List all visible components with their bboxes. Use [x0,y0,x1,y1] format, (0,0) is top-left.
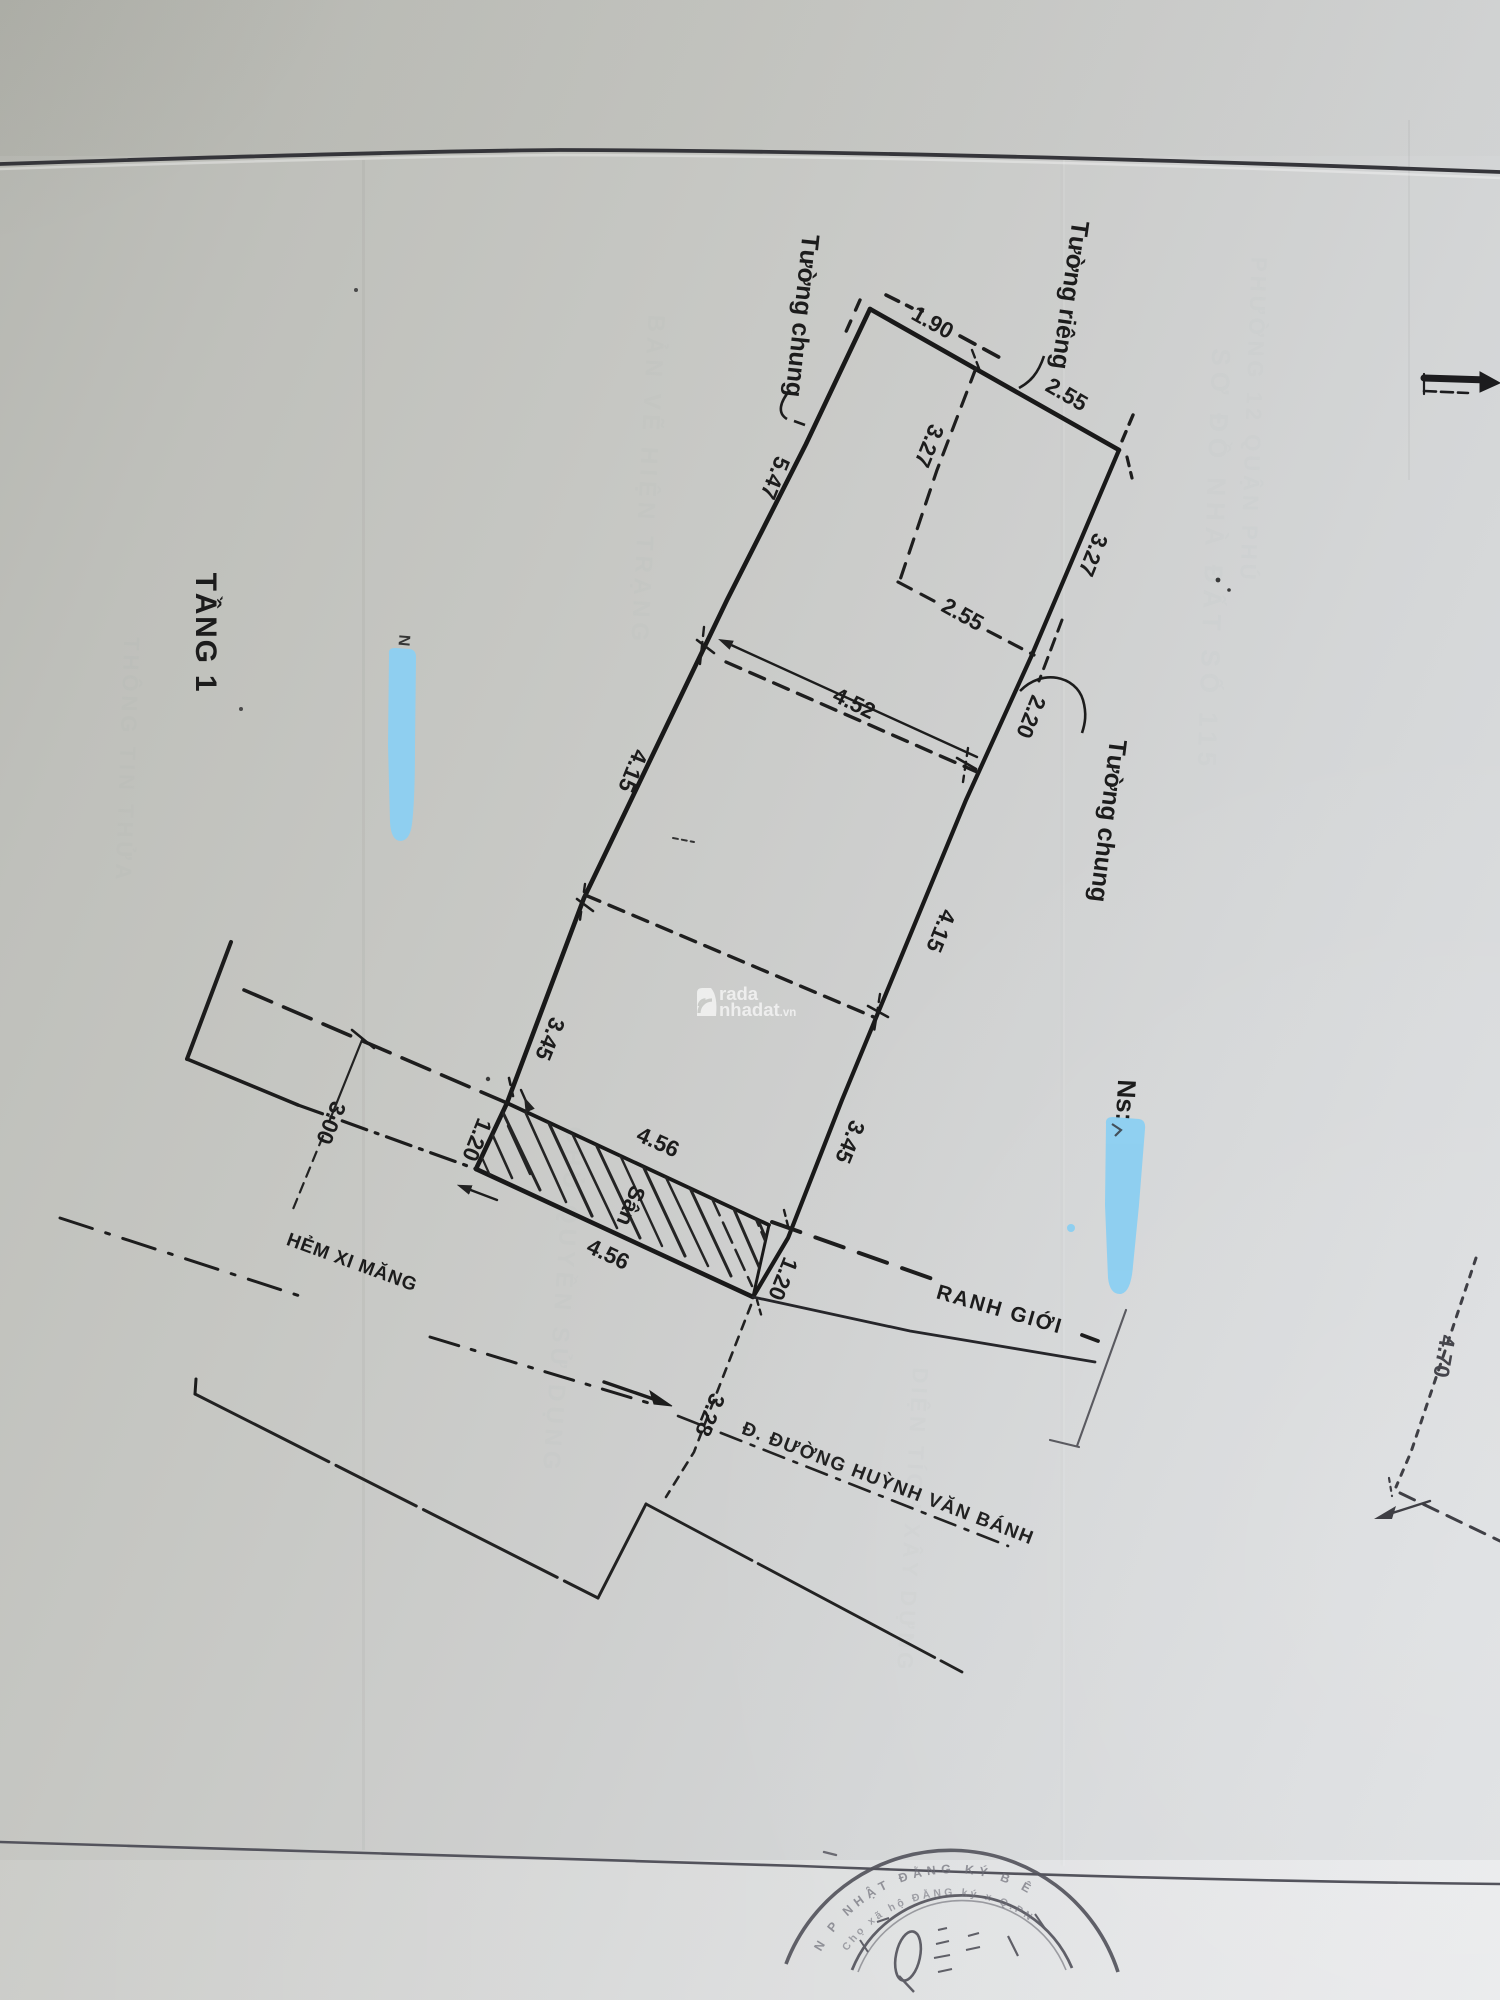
svg-text:Ns:: Ns: [1110,1079,1142,1122]
svg-text:5.47: 5.47 [755,453,795,503]
svg-text:Tường riêng: Tường riêng [1046,219,1095,371]
svg-text:BẢN VẼ HIỆN TRẠNG: BẢN VẼ HIỆN TRẠNG [625,314,671,647]
svg-text:3.45: 3.45 [530,1014,570,1064]
svg-text:3.45: 3.45 [830,1117,870,1167]
svg-text:4.15: 4.15 [921,906,961,956]
svg-text:Đ. ĐƯỜNG HUỲNH VĂN BÁNH: Đ. ĐƯỜNG HUỲNH VĂN BÁNH [739,1417,1038,1549]
svg-text:Tường chung: Tường chung [779,233,824,399]
svg-text:rada: rada [719,983,759,1004]
svg-text:1.90: 1.90 [907,301,957,344]
svg-text:RANH GIỚI: RANH GIỚI [934,1280,1066,1339]
svg-text:TẦNG 1: TẦNG 1 [189,573,223,694]
svg-text:2.20: 2.20 [1011,692,1051,742]
svg-text:SƠ ĐỒ NHÀ ĐẤT SỐ 115: SƠ ĐỒ NHÀ ĐẤT SỐ 115 [1192,348,1237,773]
svg-text:HẺM XI MĂNG: HẺM XI MĂNG [284,1228,421,1296]
svg-text:Chọ xã hộ ĐẰNG ký x Q.PN: Chọ xã hộ ĐẰNG ký x Q.PN [840,1886,1037,1953]
svg-text:4.56: 4.56 [633,1122,683,1163]
svg-text:PHƯỜNG 12 QUẬN PHÚ: PHƯỜNG 12 QUẬN PHÚ [1235,257,1271,584]
svg-text:DIỆN TÍCH XÂY DỰNG: DIỆN TÍCH XÂY DỰNG [892,1367,933,1674]
svg-text:3.28: 3.28 [690,1390,730,1440]
svg-text:4.15: 4.15 [613,746,653,796]
svg-text:N P NHẬT ĐẰNG KÝ B Ê: N P NHẬT ĐẰNG KÝ B Ê [811,1862,1038,1953]
svg-text:nhadat.vn: nhadat.vn [719,999,796,1020]
svg-text:2.55: 2.55 [1042,373,1092,417]
svg-text:THÔNG TIN THỬA: THÔNG TIN THỬA [111,637,145,884]
svg-text:CHỦ QUYỀN SỬ DỤNG: CHỦ QUYỀN SỬ DỤNG [537,1126,590,1476]
svg-text:1.20: 1.20 [763,1254,803,1304]
svg-text:4.70: 4.70 [1428,1333,1460,1380]
svg-text:3.27: 3.27 [909,421,949,471]
svg-text:N: N [395,634,413,647]
svg-text:1.20: 1.20 [457,1115,497,1165]
svg-text:Tường chung: Tường chung [1084,738,1132,904]
svg-text:4.56: 4.56 [583,1234,633,1275]
svg-text:3.27: 3.27 [1073,530,1113,580]
svg-text:Sân: Sân [612,1182,651,1230]
svg-text:3.00: 3.00 [311,1098,351,1148]
svg-text:2.55: 2.55 [937,593,987,636]
svg-text:4.52: 4.52 [829,682,879,724]
